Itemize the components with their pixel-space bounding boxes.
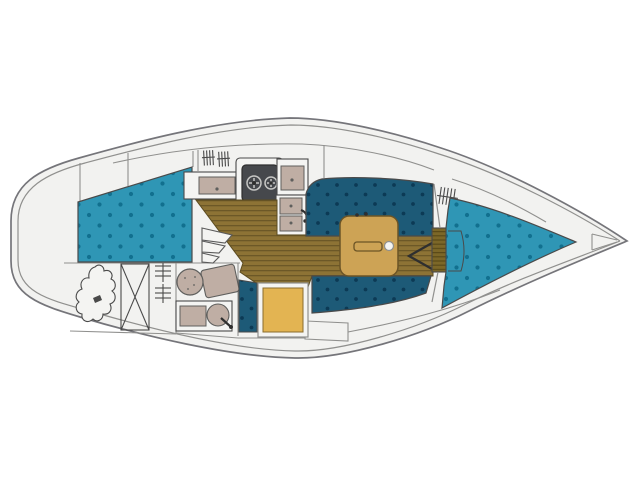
head-sink (176, 301, 233, 331)
galley-sinks (276, 195, 307, 235)
mast-post (385, 242, 394, 251)
galley-counter (184, 172, 238, 199)
head-toilet (177, 264, 240, 298)
galley-worktop (277, 159, 308, 195)
boat-plan-canvas (0, 0, 640, 480)
saloon-table (340, 212, 398, 276)
sailboat-floor-plan (0, 0, 640, 480)
nav-seat (258, 283, 308, 337)
quarter-berth-cushion (239, 280, 257, 332)
